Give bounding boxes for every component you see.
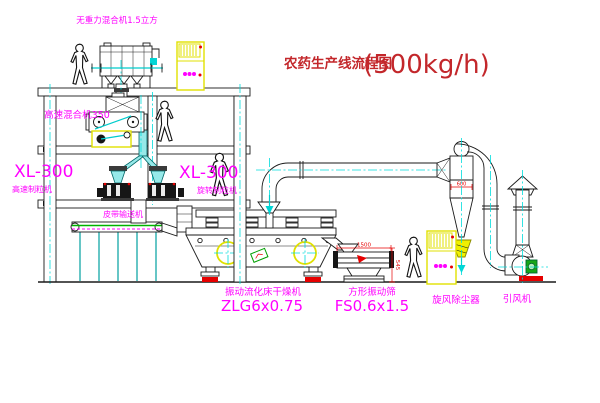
granulator-left-machine: [97, 183, 134, 201]
title-capacity: (500kg/h): [363, 50, 490, 80]
cyclone-separator: 600: [450, 138, 506, 276]
label-fan: 引风机: [503, 293, 532, 305]
granulator-right-machine: [146, 183, 184, 201]
worker-second-floor: [156, 101, 173, 141]
conveyor-dryer-transition: [162, 223, 177, 236]
label-high-speed-mixer: 高速混合机350: [44, 109, 110, 121]
label-gravity-mixer: 无重力混合机1.5立方: [76, 15, 158, 26]
label-belt-conveyor: 皮带输送机: [103, 209, 143, 219]
label-granulator-right-name: 旋转制粒机: [197, 185, 237, 195]
vibrating-sieve: 1500 545: [333, 243, 400, 283]
right-column-front: [234, 84, 246, 284]
worker-ground: [405, 237, 422, 277]
control-cabinet-upper: [177, 42, 204, 90]
sieve-length-dim: 1500: [357, 243, 371, 249]
drawing-canvas: 600: [0, 0, 600, 403]
dryer-feet: [201, 267, 322, 282]
control-cabinet-lower: [427, 231, 456, 284]
fluid-bed-dryer: [177, 206, 350, 282]
sieve-side-dim: 545: [394, 260, 400, 271]
exhaust-duct: [256, 158, 450, 228]
dryer-top-rail: [186, 228, 336, 235]
production-line-drawing: 600: [0, 0, 600, 403]
label-cyclone: 旋风除尘器: [432, 294, 480, 306]
label-granulator-right-model: XL-300: [179, 163, 238, 183]
label-granulator-left-name: 高速制粒机: [12, 184, 52, 194]
label-dryer-model: ZLG6x0.75: [221, 297, 303, 315]
label-sieve-model: FS0.6x1.5: [335, 297, 409, 315]
drawing-title: 农药生产线流程图 (500kg/h): [283, 50, 490, 80]
mixer-drive-box: [92, 131, 131, 147]
worker-top-floor: [71, 44, 88, 84]
label-granulator-left-model: XL-300: [14, 162, 73, 182]
